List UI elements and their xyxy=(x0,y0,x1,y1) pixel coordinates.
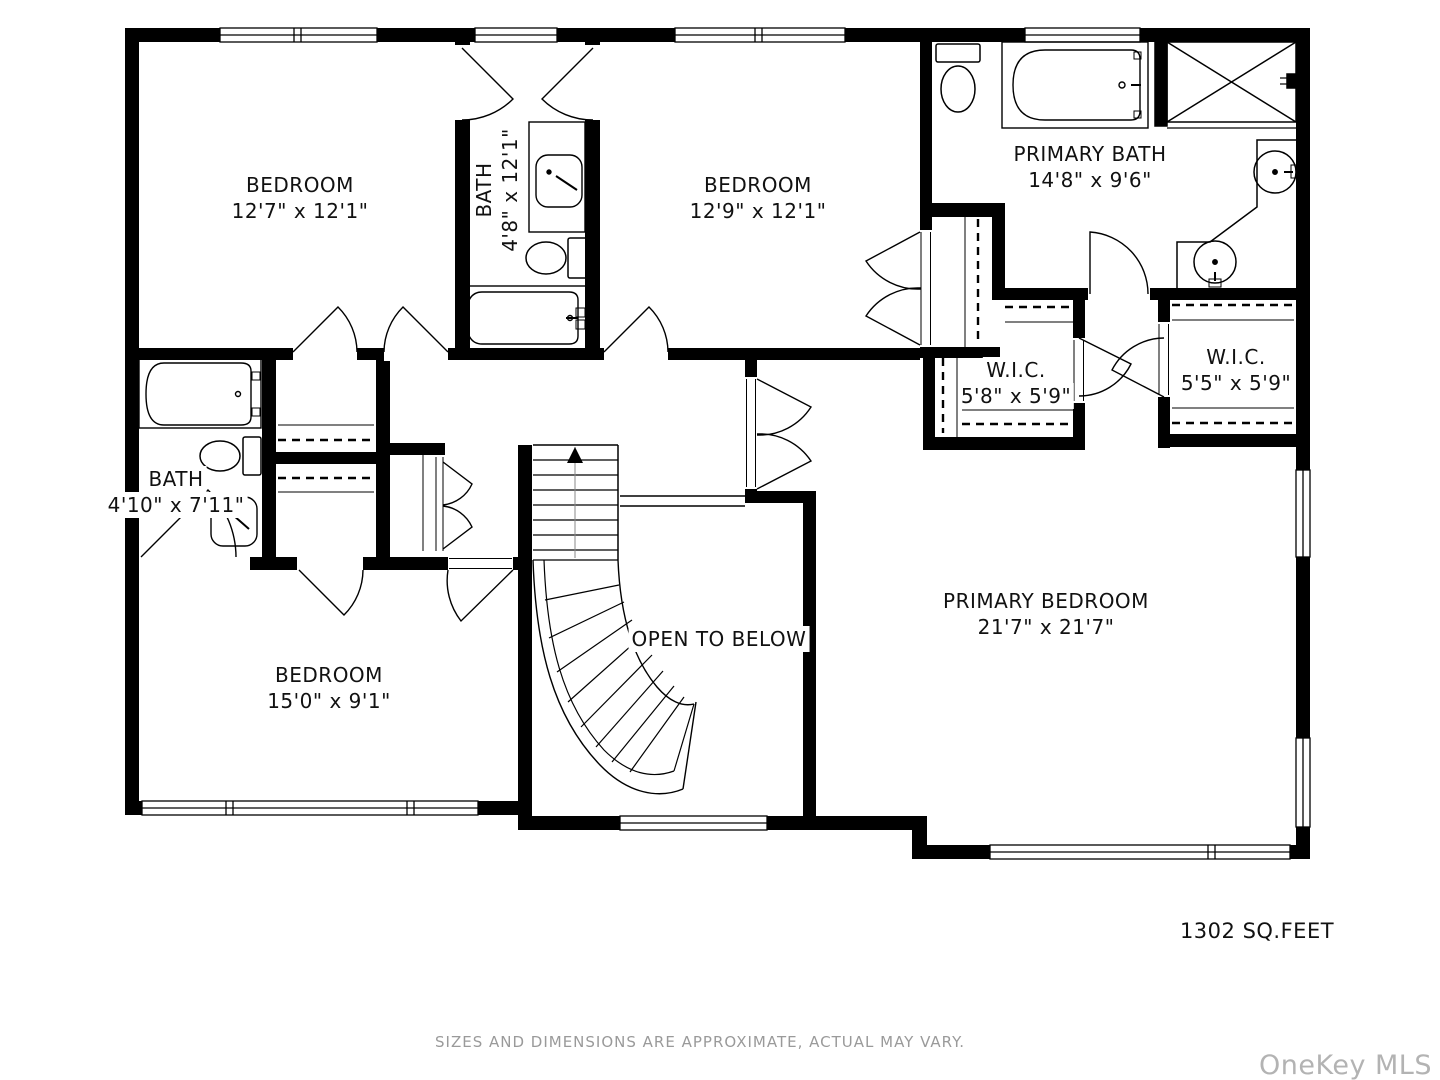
total-area-label: 1302 SQ.FEET xyxy=(1180,919,1334,943)
door-openings xyxy=(139,45,1170,570)
shower-icon xyxy=(1155,42,1296,128)
door-arc xyxy=(1090,232,1148,294)
door-swings xyxy=(141,48,1164,621)
disclaimer-text: SIZES AND DIMENSIONS ARE APPROXIMATE, AC… xyxy=(435,1033,965,1051)
staircase xyxy=(533,445,696,794)
window xyxy=(1025,28,1140,42)
room-dims: 21'7" x 21'7" xyxy=(975,614,1118,640)
door-arc xyxy=(1079,338,1131,396)
door-arc xyxy=(293,307,357,352)
room-dims: 4'10" x 7'11" xyxy=(105,492,248,518)
window xyxy=(990,845,1290,859)
room-name: OPEN TO BELOW xyxy=(629,626,810,652)
door-arc xyxy=(384,307,448,352)
floor-plan-drawing xyxy=(0,0,1440,1080)
bathtub-icon xyxy=(1002,42,1148,128)
room-label-primary-bath: PRIMARY BATH 14'8" x 9'6" xyxy=(1010,141,1169,193)
room-dims: 15'0" x 9'1" xyxy=(264,688,394,714)
room-name: PRIMARY BATH xyxy=(1010,141,1169,167)
room-name: BATH xyxy=(145,466,206,492)
window xyxy=(142,801,478,815)
room-dims: 4'8" x 12'1" xyxy=(497,125,523,255)
watermark-text: OneKey MLS xyxy=(1259,1050,1432,1080)
room-label-bath-2: BATH 4'10" x 7'11" xyxy=(105,466,248,518)
room-name: PRIMARY BEDROOM xyxy=(940,588,1152,614)
bifold-door xyxy=(443,462,472,505)
room-name: W.I.C. xyxy=(983,357,1048,383)
room-label-wic-left: W.I.C. 5'8" x 5'9" xyxy=(958,357,1074,409)
room-name: BATH xyxy=(471,159,497,220)
bathtub-icon xyxy=(459,286,589,350)
sink-icon xyxy=(1254,151,1299,193)
floor-plan-page: BEDROOM 12'7" x 12'1" BATH 4'8" x 12'1" … xyxy=(0,0,1440,1080)
window xyxy=(220,28,377,42)
room-name: BEDROOM xyxy=(701,172,815,198)
window xyxy=(475,28,557,42)
room-name: BEDROOM xyxy=(272,662,386,688)
room-label-open-to-below: OPEN TO BELOW xyxy=(629,626,810,652)
window xyxy=(620,816,767,830)
room-dims: 14'8" x 9'6" xyxy=(1025,167,1155,193)
door-arc xyxy=(447,570,513,621)
bathtub-icon xyxy=(139,357,261,428)
door-arc xyxy=(866,232,921,289)
stairs-up-arrow-icon xyxy=(567,447,583,463)
room-dims: 5'8" x 5'9" xyxy=(958,383,1074,409)
room-name: W.I.C. xyxy=(1203,344,1268,370)
railing xyxy=(620,496,745,506)
window xyxy=(1296,738,1310,827)
door-arc xyxy=(1112,338,1164,397)
room-dims: 12'9" x 12'1" xyxy=(687,198,830,224)
toilet-icon xyxy=(526,238,587,278)
room-name: BEDROOM xyxy=(243,172,357,198)
sink-icon xyxy=(529,122,585,232)
toilet-icon xyxy=(936,44,980,112)
window xyxy=(675,28,845,42)
door-arc xyxy=(757,379,811,435)
room-dims: 5'5" x 5'9" xyxy=(1178,370,1294,396)
room-label-bath-jack-and-jill: BATH 4'8" x 12'1" xyxy=(471,125,523,255)
door-arc xyxy=(604,307,668,352)
door-arc xyxy=(299,570,363,615)
room-label-bedroom-3: BEDROOM 15'0" x 9'1" xyxy=(264,662,394,714)
room-label-bedroom-1: BEDROOM 12'7" x 12'1" xyxy=(229,172,372,224)
window xyxy=(1296,470,1310,557)
room-label-primary-bedroom: PRIMARY BEDROOM 21'7" x 21'7" xyxy=(940,588,1152,640)
door-arc xyxy=(866,288,921,345)
sink-icon xyxy=(1194,241,1236,287)
room-label-wic-right: W.I.C. 5'5" x 5'9" xyxy=(1178,344,1294,396)
room-label-bedroom-2: BEDROOM 12'9" x 12'1" xyxy=(687,172,830,224)
bifold-door xyxy=(443,506,472,549)
door-arc xyxy=(757,434,811,489)
room-dims: 12'7" x 12'1" xyxy=(229,198,372,224)
